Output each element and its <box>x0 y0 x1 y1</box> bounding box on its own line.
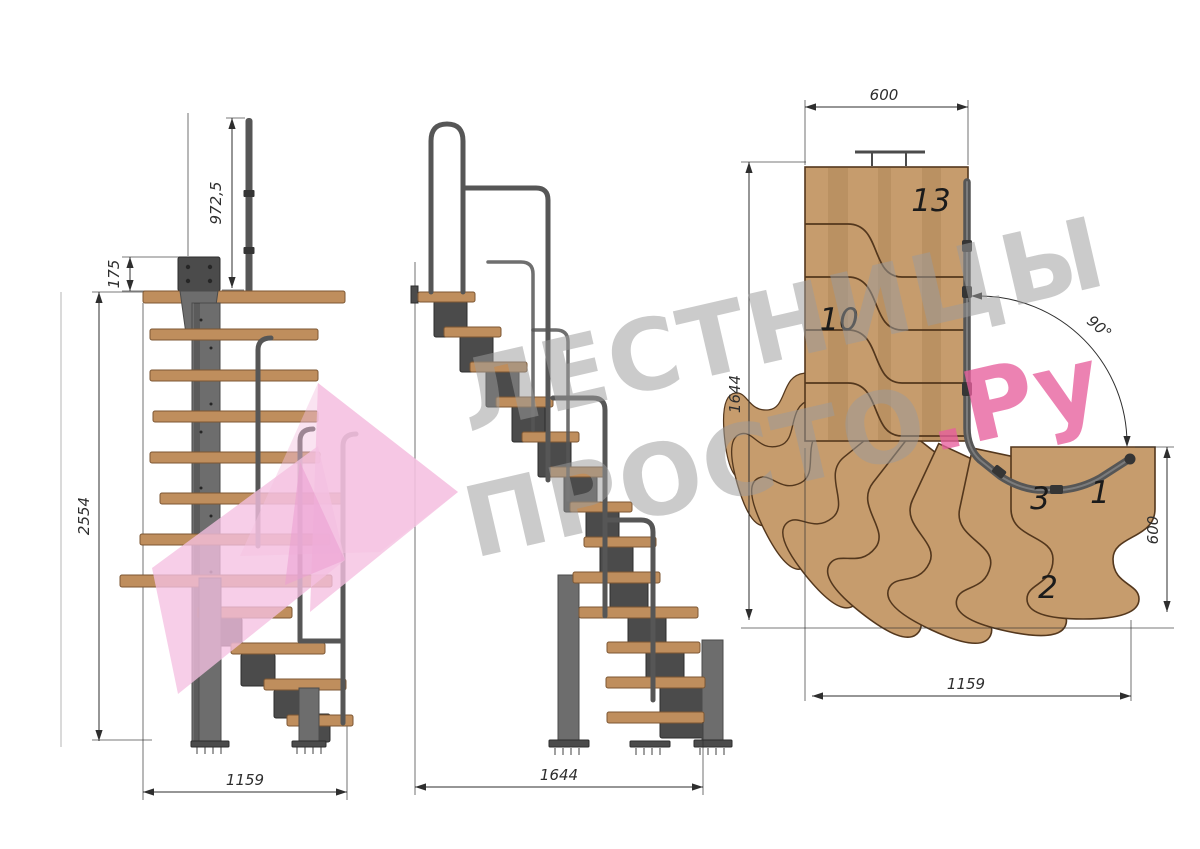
handrail-post <box>246 118 253 293</box>
anchor-bolts <box>555 748 724 755</box>
staircase-drawing-canvas: 972,5 175 2554 1159 <box>0 0 1200 849</box>
wall-bracket <box>411 286 418 303</box>
tread <box>607 712 704 723</box>
tread <box>150 370 318 381</box>
step-number-3: 3 <box>1030 481 1050 517</box>
support-column <box>299 688 319 743</box>
base-flange <box>191 741 229 747</box>
step-number-2: 2 <box>1038 570 1058 606</box>
base-flange <box>549 740 589 747</box>
dim-plan-top-width: 600 <box>870 86 899 104</box>
tread <box>153 411 318 422</box>
handrail-end-cap <box>1125 454 1136 465</box>
step-number-1: 1 <box>1090 475 1110 511</box>
support-column <box>558 575 579 740</box>
tread <box>573 572 660 583</box>
dim-front-width: 1159 <box>226 771 264 789</box>
step-number-13: 13 <box>911 183 950 219</box>
tread-1 <box>1011 447 1155 619</box>
tread <box>150 329 318 340</box>
base-flange <box>292 741 326 747</box>
dim-plan-bottom-width: 1159 <box>947 675 985 693</box>
base-flange <box>630 741 670 747</box>
turn-tread <box>579 607 698 618</box>
top-mounting-plate <box>178 257 220 291</box>
dim-rail-height: 972,5 <box>207 182 225 225</box>
anchor-bolts <box>197 747 321 754</box>
top-platform-tread <box>143 291 345 303</box>
dim-total-height: 2554 <box>75 497 93 535</box>
handrail-loop <box>431 124 463 292</box>
tread <box>418 292 475 302</box>
technical-drawing: 972,5 175 2554 1159 <box>0 0 1200 849</box>
base-flange <box>694 740 732 747</box>
watermark-arrow-fold <box>240 383 458 556</box>
dim-plan-right-height: 600 <box>1144 516 1162 545</box>
dim-side-length: 1644 <box>540 766 578 784</box>
tread <box>231 643 325 654</box>
plan-top-bracket <box>855 152 925 166</box>
dim-plate-height: 175 <box>105 260 123 289</box>
support-column <box>702 640 723 740</box>
